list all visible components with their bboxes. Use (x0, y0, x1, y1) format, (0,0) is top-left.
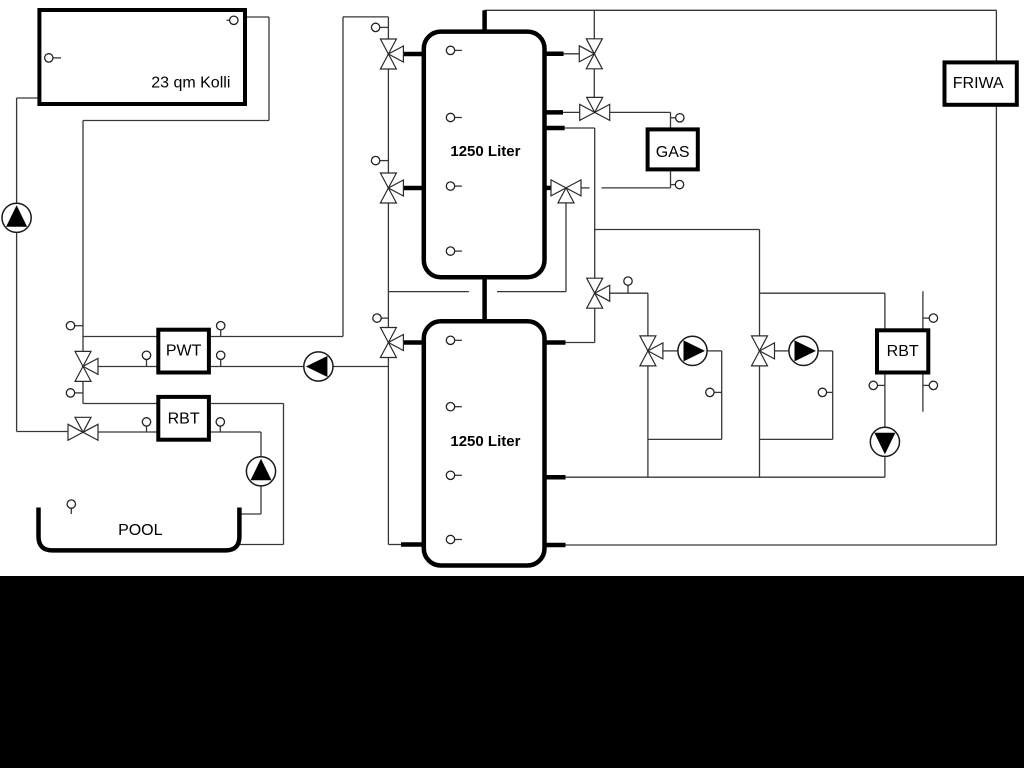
svg-text:RBT: RBT (168, 411, 200, 428)
svg-text:1250 Liter: 1250 Liter (450, 433, 520, 450)
svg-text:GAS: GAS (656, 144, 690, 161)
svg-text:RBT: RBT (887, 343, 919, 360)
svg-text:POOL: POOL (118, 522, 163, 539)
svg-text:1250 Liter: 1250 Liter (450, 143, 520, 160)
svg-text:23 qm Kolli: 23 qm Kolli (151, 74, 230, 91)
svg-text:PWT: PWT (166, 343, 202, 360)
svg-text:FRIWA: FRIWA (953, 75, 1004, 92)
